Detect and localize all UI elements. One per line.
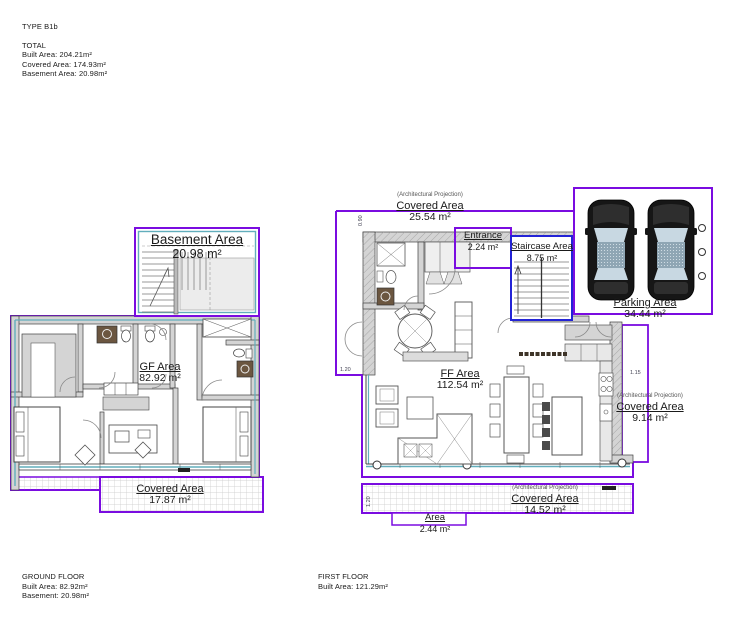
total-heading: TOTAL (22, 41, 107, 51)
basement-area-label: Basement Area 20.98 m² (127, 232, 267, 261)
car-top-view (585, 200, 637, 300)
ff-covered-bottom-label: (Architectural Projection) Covered Area … (495, 485, 595, 517)
parking-area-label: Parking Area 34.44 m² (595, 297, 695, 321)
ff-covered-top-label: (Architectural Projection) Covered Area … (370, 192, 490, 224)
total-built: Built Area: 204.21m² (22, 50, 107, 60)
ff-footer-built: Built Area: 121.29m² (318, 582, 388, 592)
gf-footer-heading: GROUND FLOOR (22, 572, 89, 582)
floor-plan-sheet: TYPE B1b TOTAL Built Area: 204.21m² Cove… (0, 0, 750, 629)
car-top-view (645, 200, 697, 300)
ff-footer-heading: FIRST FLOOR (318, 572, 388, 582)
ff-area-small-label: Area 2.44 m² (400, 513, 470, 534)
gf-footer-basement: Basement: 20.98m² (22, 591, 89, 601)
dim-left: 1.20 (340, 367, 351, 373)
title-block: TYPE B1b TOTAL Built Area: 204.21m² Cove… (22, 22, 107, 79)
total-covered: Covered Area: 174.93m² (22, 60, 107, 70)
dim-right: 1.15 (630, 370, 641, 376)
sheet-title: TYPE B1b (22, 22, 107, 32)
ff-area-label: FF Area 112.54 m² (410, 368, 510, 392)
first-floor-footer: FIRST FLOOR Built Area: 121.29m² (318, 572, 388, 591)
ground-floor-footer: GROUND FLOOR Built Area: 82.92m² Basemen… (22, 572, 89, 601)
basement-area-value: 20.98 m² (127, 247, 267, 261)
gf-footer-built: Built Area: 82.92m² (22, 582, 89, 592)
basement-area-name: Basement Area (127, 232, 267, 247)
dim-bottom: 1.20 (366, 496, 372, 507)
gf-area-label: GF Area 82.92 m² (110, 361, 210, 385)
entrance-label: Entrance 2.24 m² (452, 231, 514, 252)
dim-top: 0.90 (358, 215, 364, 226)
parking-plan (574, 188, 712, 314)
ff-covered-right-label: (Architectural Projection) Covered Area … (610, 393, 690, 425)
total-basement: Basement Area: 20.98m² (22, 69, 107, 79)
gf-covered-area-label: Covered Area 17.87 m² (110, 483, 230, 507)
staircase-area-label: Staircase Area 8.75 m² (506, 242, 578, 263)
